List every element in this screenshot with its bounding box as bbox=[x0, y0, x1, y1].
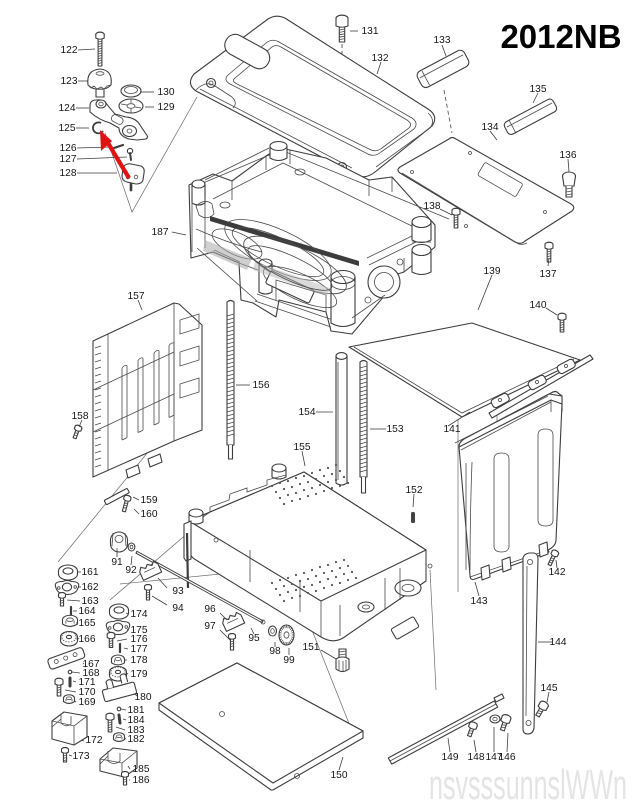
svg-text:94: 94 bbox=[172, 603, 184, 614]
svg-text:nsvsssunnslWWn: nsvsssunnslWWn bbox=[429, 761, 627, 808]
svg-text:159: 159 bbox=[141, 495, 158, 506]
svg-text:177: 177 bbox=[131, 644, 148, 655]
svg-text:173: 173 bbox=[73, 751, 90, 762]
svg-text:186: 186 bbox=[133, 775, 150, 786]
svg-text:187: 187 bbox=[152, 227, 169, 238]
svg-text:154: 154 bbox=[299, 407, 316, 418]
svg-text:126: 126 bbox=[60, 143, 77, 154]
svg-text:2012NB: 2012NB bbox=[500, 18, 621, 55]
svg-text:143: 143 bbox=[471, 596, 488, 607]
svg-text:129: 129 bbox=[158, 102, 175, 113]
svg-text:98: 98 bbox=[269, 646, 281, 657]
svg-text:180: 180 bbox=[135, 692, 152, 703]
svg-text:137: 137 bbox=[540, 269, 557, 280]
svg-text:144: 144 bbox=[550, 637, 567, 648]
svg-text:95: 95 bbox=[248, 633, 260, 644]
svg-text:157: 157 bbox=[128, 291, 145, 302]
svg-text:142: 142 bbox=[549, 567, 566, 578]
svg-text:150: 150 bbox=[331, 770, 348, 781]
svg-text:131: 131 bbox=[362, 26, 379, 37]
svg-text:97: 97 bbox=[204, 621, 216, 632]
svg-text:138: 138 bbox=[424, 201, 441, 212]
svg-text:179: 179 bbox=[131, 669, 148, 680]
svg-text:178: 178 bbox=[131, 655, 148, 666]
svg-text:125: 125 bbox=[59, 123, 76, 134]
svg-text:185: 185 bbox=[133, 764, 150, 775]
svg-text:96: 96 bbox=[204, 604, 216, 615]
svg-text:141: 141 bbox=[444, 424, 461, 435]
svg-text:153: 153 bbox=[387, 424, 404, 435]
svg-text:172: 172 bbox=[86, 735, 103, 746]
svg-text:166: 166 bbox=[79, 634, 96, 645]
svg-text:124: 124 bbox=[59, 103, 76, 114]
svg-text:127: 127 bbox=[60, 154, 77, 165]
svg-text:162: 162 bbox=[82, 582, 99, 593]
svg-text:182: 182 bbox=[128, 734, 145, 745]
svg-text:160: 160 bbox=[141, 509, 158, 520]
svg-text:92: 92 bbox=[125, 565, 137, 576]
svg-text:122: 122 bbox=[61, 45, 78, 56]
svg-text:133: 133 bbox=[434, 35, 451, 46]
svg-text:165: 165 bbox=[79, 618, 96, 629]
svg-text:156: 156 bbox=[253, 380, 270, 391]
svg-text:169: 169 bbox=[79, 697, 96, 708]
svg-text:123: 123 bbox=[61, 76, 78, 87]
svg-text:161: 161 bbox=[82, 567, 99, 578]
svg-text:174: 174 bbox=[131, 609, 148, 620]
svg-text:151: 151 bbox=[303, 642, 320, 653]
svg-text:140: 140 bbox=[530, 300, 547, 311]
svg-text:99: 99 bbox=[283, 655, 295, 666]
svg-text:158: 158 bbox=[72, 411, 89, 422]
svg-text:91: 91 bbox=[111, 557, 123, 568]
svg-text:132: 132 bbox=[372, 53, 389, 64]
svg-text:130: 130 bbox=[158, 87, 175, 98]
svg-text:93: 93 bbox=[172, 586, 184, 597]
svg-text:164: 164 bbox=[79, 606, 96, 617]
svg-text:128: 128 bbox=[60, 168, 77, 179]
